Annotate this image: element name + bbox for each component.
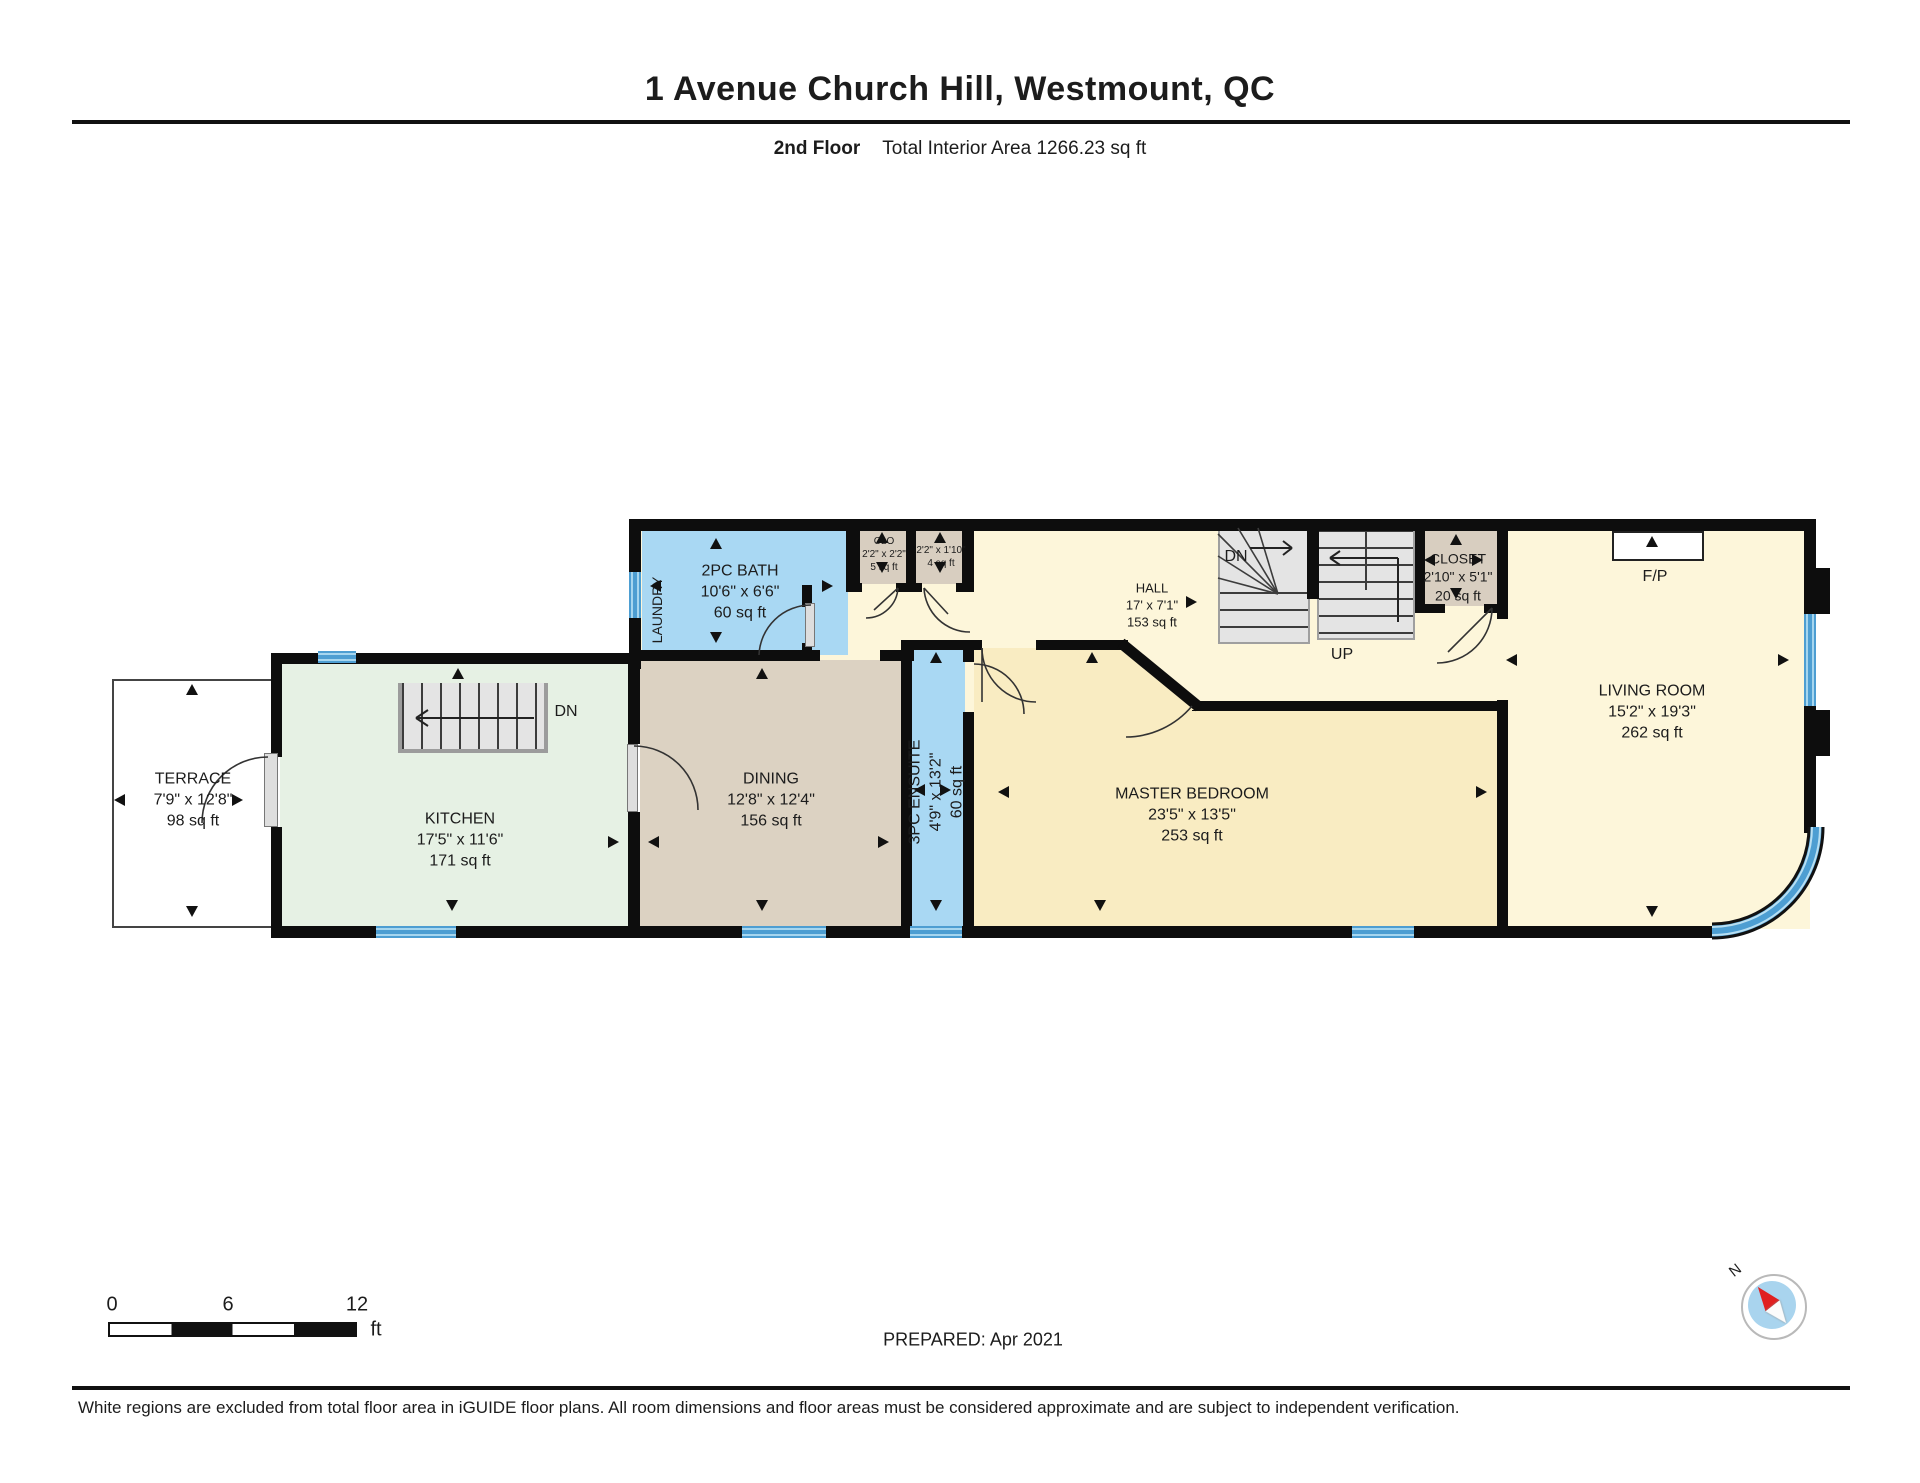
room-dims: 23'5" x 13'5" bbox=[1115, 804, 1269, 825]
dimension-arrow bbox=[446, 900, 458, 911]
fireplace-label: F/P bbox=[1643, 568, 1668, 586]
room-name: LIVING ROOM bbox=[1599, 680, 1706, 701]
room-area: 171 sq ft bbox=[417, 851, 504, 872]
dimension-arrow bbox=[934, 562, 946, 573]
dimension-arrow bbox=[1778, 654, 1789, 666]
dimension-arrow bbox=[1472, 554, 1483, 566]
scale-tick-6: 6 bbox=[222, 1294, 233, 1317]
bay-window-inner-edge bbox=[1712, 827, 1809, 924]
room-area: 153 sq ft bbox=[1126, 614, 1178, 631]
prepared-date-label: PREPARED: Apr 2021 bbox=[883, 1330, 1063, 1351]
dimension-arrow bbox=[934, 532, 946, 543]
room-label-living: LIVING ROOM 15'2" x 19'3" 262 sq ft bbox=[1599, 680, 1706, 743]
room-area: 156 sq ft bbox=[727, 811, 815, 832]
room-label-bath: 2PC BATH 10'6" x 6'6" 60 sq ft bbox=[701, 560, 780, 623]
dimension-arrow bbox=[1186, 596, 1197, 608]
dimension-arrow bbox=[710, 632, 722, 643]
room-name: DINING bbox=[727, 768, 815, 789]
closet-door-leaf bbox=[1448, 608, 1492, 652]
dimension-arrow bbox=[1086, 652, 1098, 663]
room-dims: 17'5" x 11'6" bbox=[417, 829, 504, 850]
room-label-kitchen: KITCHEN 17'5" x 11'6" 171 sq ft bbox=[417, 808, 504, 871]
room-area: 262 sq ft bbox=[1599, 723, 1706, 744]
master-diagonal-door-arc bbox=[1126, 706, 1192, 737]
dimension-arrow bbox=[650, 580, 661, 592]
dimension-arrow bbox=[186, 684, 198, 695]
dimension-arrow bbox=[1094, 900, 1106, 911]
room-area: 60 sq ft bbox=[701, 603, 780, 624]
room-label-dining: DINING 12'8" x 12'4" 156 sq ft bbox=[727, 768, 815, 831]
scale-tick-0: 0 bbox=[106, 1294, 117, 1317]
dimension-arrow bbox=[930, 652, 942, 663]
dimension-arrow bbox=[1450, 588, 1462, 599]
room-name: KITCHEN bbox=[417, 808, 504, 829]
room-name: 2PC BATH bbox=[701, 560, 780, 581]
dimension-arrow bbox=[608, 836, 619, 848]
dimension-arrow bbox=[1424, 554, 1435, 566]
room-dims: 7'9" x 12'8" bbox=[154, 789, 233, 810]
room-dims: 15'2" x 19'3" bbox=[1599, 701, 1706, 722]
dimension-arrow bbox=[756, 668, 768, 679]
dimension-arrow bbox=[1476, 786, 1487, 798]
dimension-arrow bbox=[930, 900, 942, 911]
room-dims: 12'8" x 12'4" bbox=[727, 789, 815, 810]
dimension-arrow bbox=[998, 786, 1009, 798]
room-dims: 2'2" x 1'10" bbox=[916, 544, 965, 557]
bay-window-glass bbox=[1712, 827, 1816, 931]
room-area: 253 sq ft bbox=[1115, 826, 1269, 847]
room-dims: 10'6" x 6'6" bbox=[701, 581, 780, 602]
scale-unit-label: ft bbox=[370, 1319, 381, 1342]
dimension-arrow bbox=[1450, 534, 1462, 545]
small-closet2-door-leaf bbox=[924, 588, 948, 614]
dimension-arrow bbox=[232, 794, 243, 806]
stairs-up-label: UP bbox=[1331, 646, 1353, 664]
room-dims: 2'10" x 5'1" bbox=[1424, 568, 1493, 586]
room-dims: 17' x 7'1" bbox=[1126, 596, 1178, 613]
dimension-arrow bbox=[1506, 654, 1517, 666]
dimension-arrow bbox=[648, 836, 659, 848]
dimension-arrow bbox=[1646, 536, 1658, 547]
dimension-arrow bbox=[876, 562, 888, 573]
room-label-hall: HALL 17' x 7'1" 153 sq ft bbox=[1126, 579, 1178, 630]
dimension-arrow bbox=[878, 836, 889, 848]
dimension-arrow bbox=[756, 900, 768, 911]
scale-bar bbox=[108, 1322, 357, 1337]
dimension-arrow bbox=[940, 784, 951, 796]
stair-direction-arrows bbox=[416, 541, 1398, 726]
dimension-arrow bbox=[710, 538, 722, 549]
master-door-arc bbox=[982, 648, 1036, 702]
small-closet1-door-leaf bbox=[874, 588, 898, 610]
dimension-arrow bbox=[1646, 906, 1658, 917]
dimension-arrow bbox=[114, 794, 125, 806]
dimension-arrow bbox=[452, 668, 464, 679]
kitchen-door-arc bbox=[634, 746, 698, 810]
room-label-terrace: TERRACE 7'9" x 12'8" 98 sq ft bbox=[154, 768, 233, 831]
room-area: 98 sq ft bbox=[154, 811, 233, 832]
dimension-arrow bbox=[822, 580, 833, 592]
dimension-arrow bbox=[876, 532, 888, 543]
room-name: HALL bbox=[1126, 579, 1178, 596]
stairs-dn-label-hall: DN bbox=[1224, 548, 1247, 566]
room-label-master: MASTER BEDROOM 23'5" x 13'5" 253 sq ft bbox=[1115, 783, 1269, 846]
dimension-arrow bbox=[914, 784, 925, 796]
room-dims: 2'2" x 2'2" bbox=[862, 548, 906, 561]
dimension-arrow bbox=[186, 906, 198, 917]
stairs-dn-label-kitchen: DN bbox=[554, 703, 577, 721]
room-name: MASTER BEDROOM bbox=[1115, 783, 1269, 804]
scale-tick-12: 12 bbox=[346, 1294, 368, 1317]
disclaimer-text: White regions are excluded from total fl… bbox=[78, 1398, 1460, 1418]
room-name: TERRACE bbox=[154, 768, 233, 789]
